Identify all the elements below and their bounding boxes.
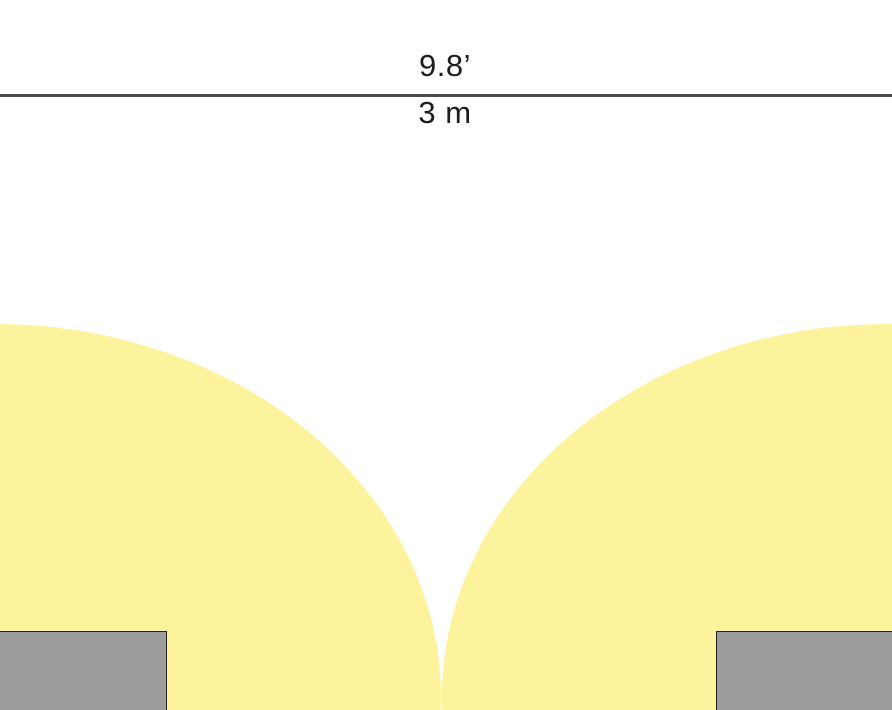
light-distribution-diagram: 9.8’ 3 m <box>0 0 892 710</box>
fixture-block-left <box>0 631 167 710</box>
distance-label-feet: 9.8’ <box>0 50 892 81</box>
fixture-block-right <box>716 631 892 710</box>
distance-label-meters: 3 m <box>0 97 892 128</box>
